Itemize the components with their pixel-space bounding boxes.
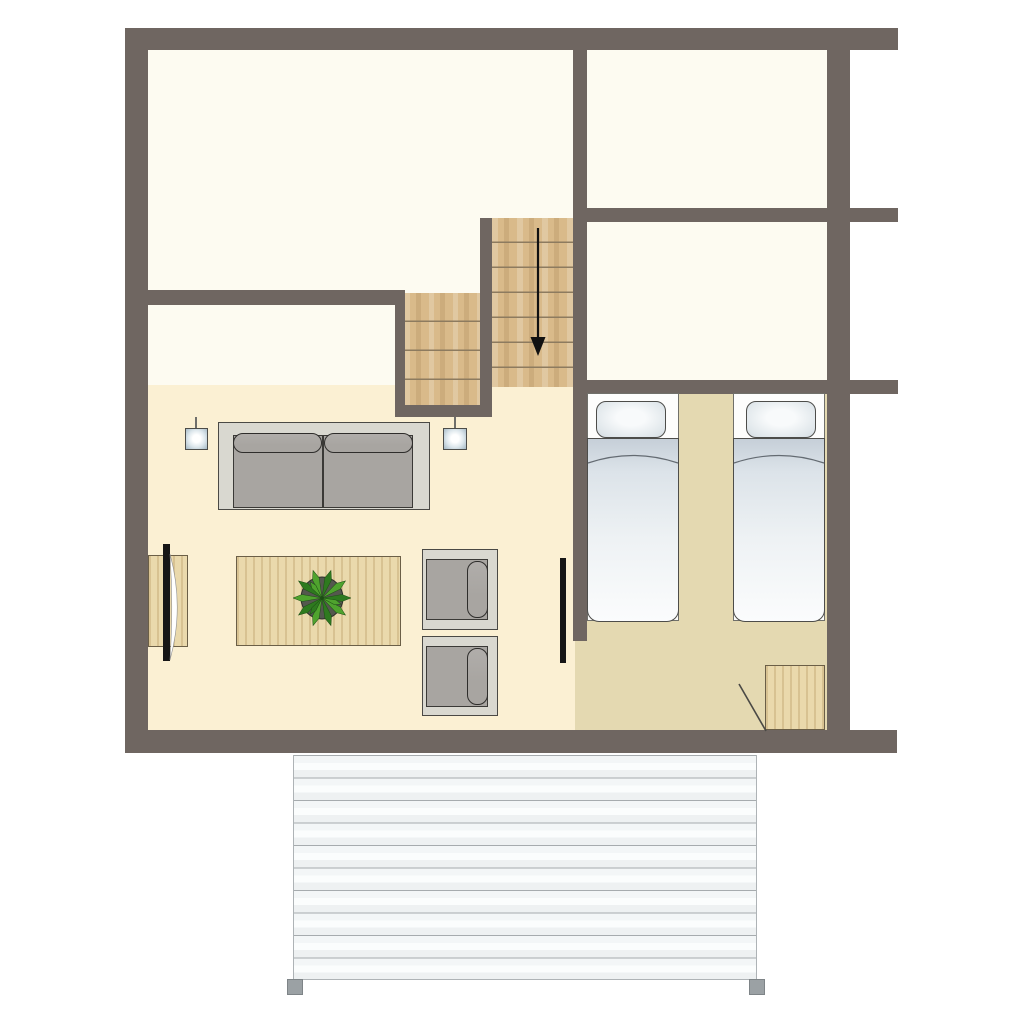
armchair-lower-back-cushion	[467, 648, 488, 705]
armchair-upper-back-cushion	[467, 561, 488, 618]
wall-stairs-bottom	[395, 405, 490, 417]
sofa	[218, 422, 430, 510]
wall-outer-top	[125, 28, 898, 50]
wall-outer-left	[125, 28, 148, 753]
bed-left-duvet	[587, 438, 679, 622]
bed-left-pillow	[596, 401, 666, 438]
wall-right-rooms-divider	[587, 208, 898, 222]
tv-screen-left	[163, 544, 170, 661]
wall-bedroom-top	[573, 380, 898, 394]
sofa-back-cushion-left	[233, 433, 322, 453]
pendant-light-left	[185, 428, 208, 450]
tv-screen-bedroom-wall	[560, 558, 566, 663]
stairs-lower-flight	[405, 293, 480, 405]
wall-stairs-middle	[480, 218, 492, 417]
deck-post-right	[749, 979, 765, 995]
wall-smallroom-top	[148, 290, 405, 305]
pendant-light-right	[443, 428, 467, 450]
sofa-back-cushion-right	[324, 433, 413, 453]
armchair-lower	[422, 636, 498, 716]
armchair-upper	[422, 549, 498, 630]
room-top-right-lower-floor	[587, 222, 827, 393]
bed-right	[733, 393, 825, 621]
floor-plan	[0, 0, 1024, 1024]
bed-right-duvet	[733, 438, 825, 622]
closet	[765, 665, 825, 730]
wall-outer-bottom	[125, 730, 897, 753]
pendant-light-left-stem	[195, 417, 197, 428]
bed-left	[587, 393, 679, 621]
room-top-right-upper-floor	[587, 50, 827, 222]
bed-right-pillow	[746, 401, 816, 438]
wall-smallroom-right	[395, 290, 405, 417]
stairs-upper-flight	[492, 218, 573, 387]
deck-post-left	[287, 979, 303, 995]
pendant-light-right-stem	[454, 417, 456, 428]
coffee-table	[236, 556, 401, 646]
deck	[293, 755, 757, 980]
wall-center-vertical	[573, 50, 587, 641]
